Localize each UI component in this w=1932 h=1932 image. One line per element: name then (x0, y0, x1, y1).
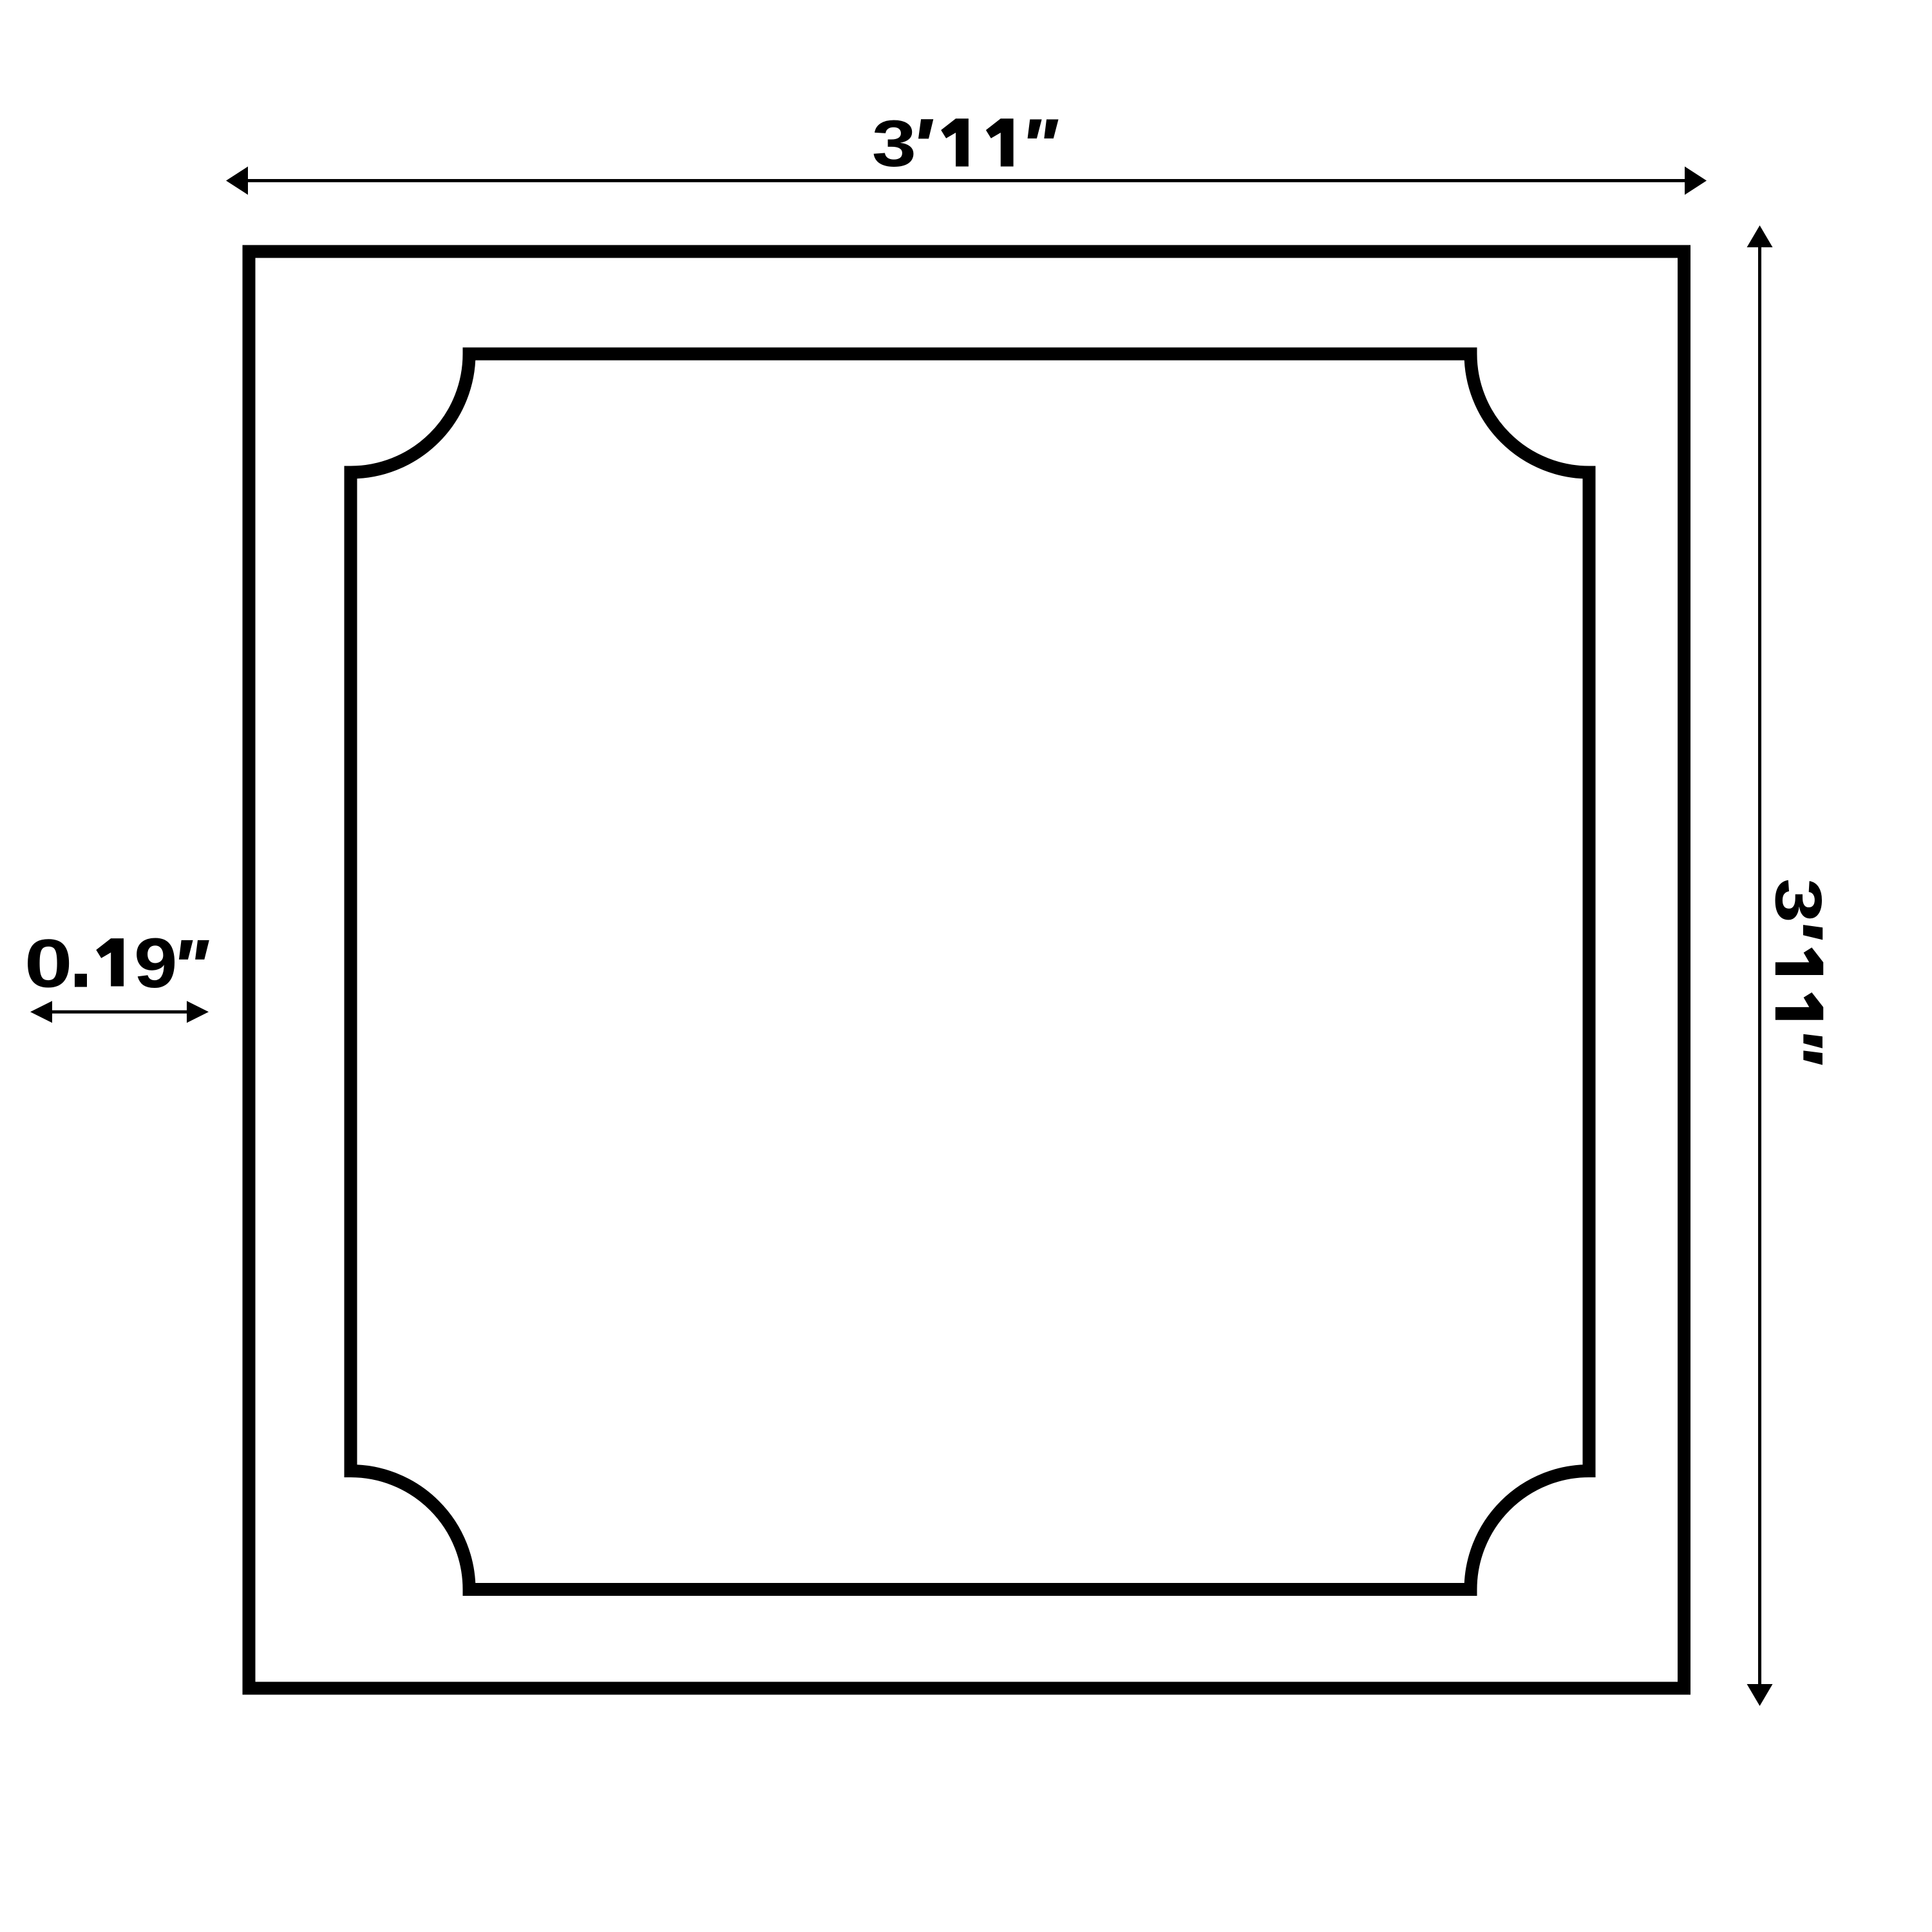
svg-text:9: 9 (134, 925, 178, 1003)
svg-text:0: 0 (24, 925, 73, 1001)
